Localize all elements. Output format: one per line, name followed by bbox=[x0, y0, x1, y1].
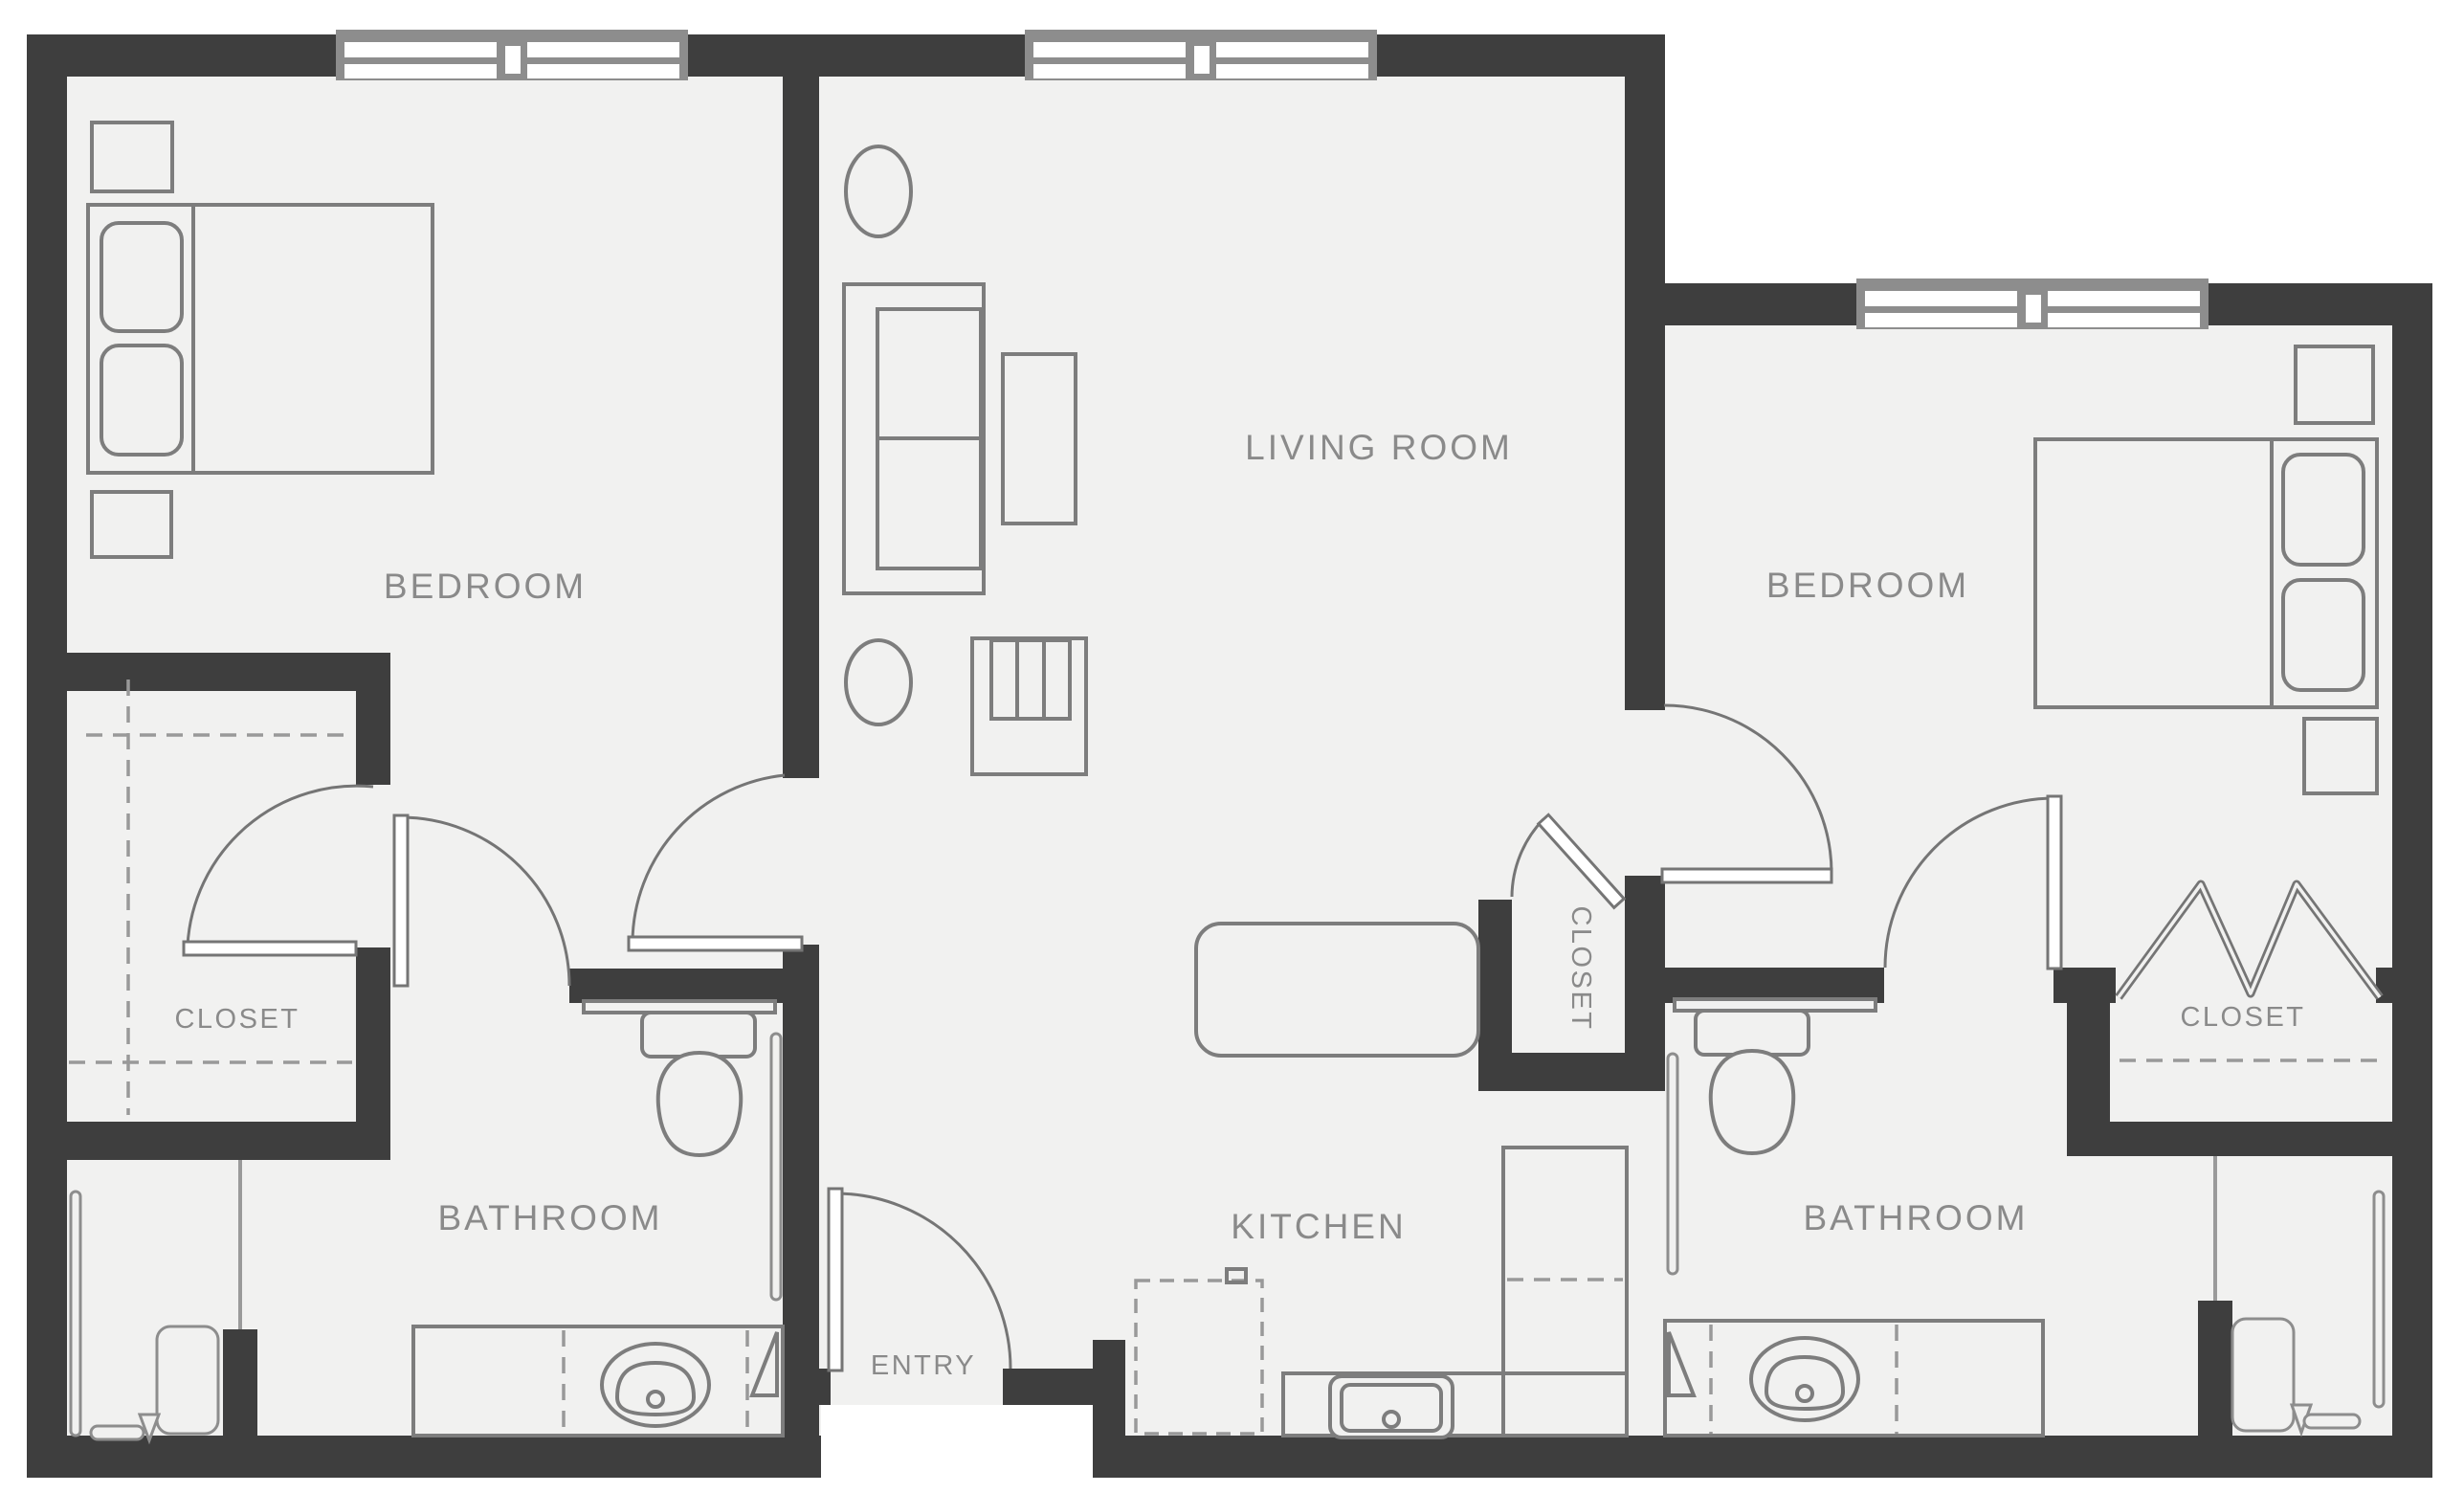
label-bathroom-left: BATHROOM bbox=[437, 1198, 662, 1237]
wall-left-outer bbox=[27, 34, 67, 1478]
label-closet-left: CLOSET bbox=[174, 1004, 300, 1035]
wall-midcloset-bottom bbox=[1478, 1053, 1665, 1091]
sink-icon bbox=[1751, 1338, 1858, 1420]
label-closet-right: CLOSET bbox=[2180, 1002, 2305, 1033]
label-bedroom-right: BEDROOM bbox=[1766, 566, 1969, 605]
wall-shower1-stub bbox=[223, 1329, 257, 1436]
entry-porch-recess bbox=[821, 1405, 1093, 1493]
nightstand-icon bbox=[2296, 346, 2373, 423]
nightstand-icon bbox=[2304, 719, 2377, 793]
window-icon bbox=[336, 30, 688, 80]
bed-icon bbox=[88, 205, 433, 473]
tv-console-icon bbox=[972, 638, 1086, 774]
wall-bottom-left bbox=[27, 1436, 821, 1478]
label-kitchen: KITCHEN bbox=[1231, 1207, 1406, 1246]
wall-a-upper bbox=[783, 77, 819, 778]
kitchen-island-icon bbox=[1196, 924, 1478, 1056]
wall-bed2-door-jamb bbox=[2053, 968, 2116, 1003]
label-bedroom-left: BEDROOM bbox=[384, 567, 587, 606]
wall-top-main bbox=[27, 34, 1665, 77]
side-table-icon bbox=[846, 640, 911, 724]
wall-closet2-bottom bbox=[2067, 1122, 2432, 1156]
kitchen-sink-icon bbox=[1330, 1376, 1453, 1437]
sofa-icon bbox=[844, 284, 984, 593]
wall-closet1-top bbox=[27, 653, 390, 691]
sink-icon bbox=[602, 1344, 709, 1426]
floor-plan-page: BEDROOM LIVING ROOM BEDROOM CLOSET CLOSE… bbox=[0, 0, 2464, 1493]
label-bathroom-right: BATHROOM bbox=[1803, 1198, 2028, 1237]
wall-closet1-bottom bbox=[27, 1122, 390, 1160]
wall-entry-right-stub bbox=[1003, 1369, 1093, 1405]
towel-bar-icon bbox=[771, 1034, 781, 1300]
side-table-icon bbox=[846, 146, 911, 236]
label-closet-middle: CLOSET bbox=[1565, 905, 1596, 1031]
wall-kitchen-divider bbox=[1093, 1340, 1125, 1436]
floor-plan-canvas: BEDROOM LIVING ROOM BEDROOM CLOSET CLOSE… bbox=[0, 0, 2464, 1493]
wall-a-lower bbox=[783, 945, 819, 1436]
label-living-room: LIVING ROOM bbox=[1245, 428, 1513, 467]
wall-bifold-right-corner bbox=[2376, 968, 2432, 1003]
wall-bath1-top bbox=[569, 969, 817, 1003]
window-icon bbox=[1856, 279, 2209, 329]
wall-right-outer bbox=[2392, 283, 2432, 1478]
bed-icon bbox=[2035, 439, 2377, 707]
wall-entry-left-stub bbox=[783, 1369, 831, 1405]
window-icon bbox=[1025, 30, 1377, 80]
wall-bottom-right bbox=[1093, 1436, 2432, 1478]
nightstand-icon bbox=[92, 492, 171, 557]
wall-shower2-stub bbox=[2198, 1301, 2232, 1436]
coffee-table-icon bbox=[1003, 354, 1076, 524]
wall-closet1-right-upper bbox=[356, 653, 390, 785]
nightstand-icon bbox=[92, 123, 172, 191]
wall-divider-upper bbox=[1625, 34, 1665, 710]
label-entry: ENTRY bbox=[871, 1350, 976, 1381]
towel-bar-icon bbox=[1668, 1054, 1677, 1274]
